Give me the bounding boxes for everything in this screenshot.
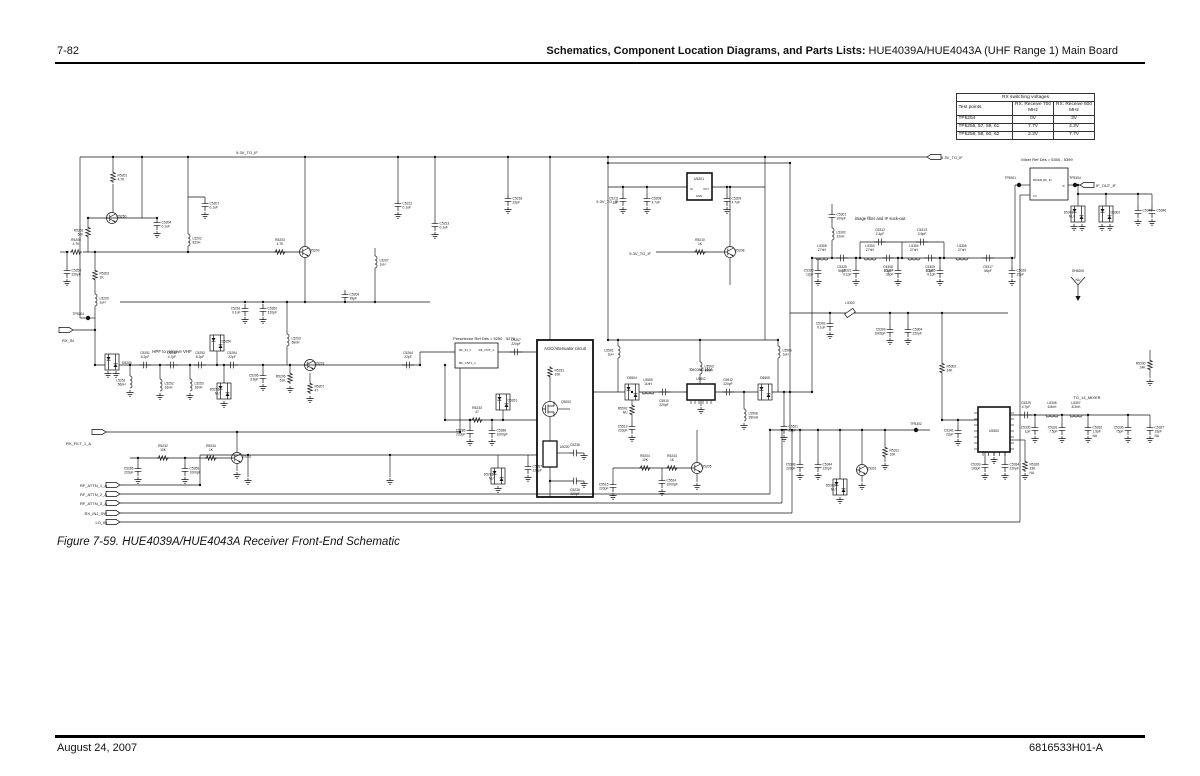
capacitor-symbol: [781, 422, 788, 434]
resistor-symbol: [883, 446, 888, 458]
ground-symbol: [1106, 224, 1113, 230]
manual-page: 7-82 Schematics, Component Location Diag…: [0, 0, 1200, 776]
component-label: 0.1uF: [210, 206, 218, 210]
component-label: 22pF: [404, 355, 412, 359]
ground-symbol: [156, 393, 163, 399]
component-label: NU: [1069, 215, 1074, 219]
voltage-table-header-800: RX: Receive 800 MHz: [1054, 101, 1095, 115]
voltage-table-header-testpoints: Test points: [957, 101, 1013, 115]
ground-symbol: [259, 317, 266, 323]
ground-symbol: [814, 279, 821, 285]
junction-dot: [129, 364, 131, 366]
junction-dot: [764, 156, 766, 158]
ground-symbol: [201, 212, 208, 218]
capacitor-symbol: [432, 219, 439, 231]
testpoint-dot: [1017, 183, 1021, 187]
component-label: 27nH: [958, 248, 967, 252]
junction-dot: [112, 156, 114, 158]
component-label: 4.7K: [118, 178, 126, 182]
resistor-symbol: [630, 404, 635, 416]
ground-symbol: [886, 338, 893, 344]
component-label: 220pF: [913, 332, 922, 336]
component-label: 0.1uF: [162, 225, 170, 229]
net-label: GND: [696, 194, 702, 198]
junction-dot: [901, 257, 903, 259]
component-label: 24K: [1140, 366, 1147, 370]
component-label: 1K: [209, 448, 214, 452]
component-label: 11nH: [644, 382, 652, 386]
table-row: TP5254 0V 3V: [957, 115, 1095, 123]
junction-dot: [831, 257, 833, 259]
junction-dot: [859, 257, 861, 259]
component-label: NU: [1093, 434, 1098, 438]
inductor-symbol: [287, 334, 289, 346]
net-label: IF_OUT_IF: [1096, 183, 1117, 188]
component-label: 0.1uF: [817, 326, 825, 330]
component-label: 220pF: [823, 467, 832, 471]
component-label: 4.7pF: [1022, 405, 1030, 409]
component-label: TP5301: [1004, 176, 1016, 180]
component-label: 390nH: [749, 416, 759, 420]
component-label: 100pF: [837, 217, 846, 221]
junction-dot: [344, 301, 346, 303]
junction-dot: [789, 391, 791, 393]
capacitor-symbol: [569, 450, 581, 457]
junction-dot: [897, 257, 899, 259]
capacitor-symbol: [135, 464, 142, 476]
junction-dot: [262, 364, 264, 366]
ground-symbol: [394, 212, 401, 218]
component-label: 8.2pF: [196, 355, 204, 359]
junction-dot: [789, 162, 791, 164]
net-label: 9.3V_TO_IF: [941, 155, 963, 160]
ground-symbol: [1124, 436, 1131, 442]
testpoint-dot: [86, 316, 90, 320]
ground-symbol: [1008, 279, 1015, 285]
junction-dot: [304, 301, 306, 303]
junction-dot: [247, 454, 249, 456]
ground-symbol: [697, 407, 704, 413]
ground-symbol: [796, 473, 803, 479]
ground-symbol: [836, 497, 843, 503]
ic-box: [543, 441, 557, 467]
testpoint-cell: TP5254: [957, 115, 1013, 123]
resistor-symbol: [205, 456, 217, 461]
capacitor-symbol: [955, 426, 962, 438]
component-label: 1000pF: [667, 483, 678, 487]
junction-dot: [184, 457, 186, 459]
junction-dot: [607, 339, 609, 341]
junction-dot: [855, 257, 857, 259]
figure-caption: Figure 7-59. HUE4039A/HUE4043A Receiver …: [57, 536, 400, 548]
junction-dot: [777, 339, 779, 341]
resistor-symbol: [308, 382, 313, 394]
inductor-symbol: [95, 294, 97, 306]
junction-dot: [374, 301, 376, 303]
capacitor-symbol: [620, 194, 627, 206]
capacitor-symbol: [887, 325, 894, 337]
net-label: Second LNA: [689, 367, 713, 372]
component-label: C5346: [1157, 209, 1167, 213]
component-label: 9.1pF: [927, 273, 935, 277]
junction-dot: [941, 312, 943, 314]
junction-dot: [811, 257, 813, 259]
footer-part-number: 6816533H01-A: [1029, 742, 1103, 754]
junction-dot: [199, 484, 201, 486]
net-label: OUT: [703, 187, 709, 191]
capacitor-symbol: [1009, 266, 1016, 278]
component-label: 220pF: [124, 471, 133, 475]
ground-symbol: [780, 435, 787, 441]
net-label: image filter and IF suck-out: [855, 216, 906, 221]
voltage-table-title: RX switching voltages: [957, 94, 1095, 102]
component-label: 75pF: [1116, 430, 1124, 434]
junction-dot: [617, 339, 619, 341]
junction-dot: [811, 391, 813, 393]
resistor-symbol: [940, 362, 945, 374]
component-label: 8.2pF: [141, 355, 149, 359]
component-label: 47: [475, 410, 479, 414]
component-label: 39pF: [350, 297, 358, 301]
component-label: 220pF: [1010, 467, 1019, 471]
voltage-table: RX switching voltages Test points RX: Re…: [956, 93, 1095, 140]
capacitor-symbol: [1085, 423, 1092, 435]
capacitor-symbol: [342, 290, 349, 302]
junction-dot: [389, 454, 391, 456]
junction-dot: [781, 429, 783, 431]
junction-dot: [236, 431, 238, 433]
ground-symbol: [881, 463, 888, 469]
component-label: 3.9pF: [918, 232, 926, 236]
connector-symbol: [59, 327, 73, 332]
junction-dot: [769, 429, 771, 431]
junction-dot: [141, 156, 143, 158]
ground-symbol: [244, 478, 251, 484]
capacitor-symbol: [644, 194, 651, 206]
component-label: D5505: [760, 376, 770, 380]
component-label: 10K: [642, 458, 649, 462]
component-label: 10K: [555, 373, 562, 377]
component-label: 0.1uF: [403, 206, 411, 210]
junction-dot: [549, 156, 551, 158]
ground-symbol: [580, 481, 587, 487]
inductor-symbol: [618, 346, 620, 358]
junction-dot: [66, 251, 68, 253]
junction-dot: [434, 156, 436, 158]
ground-symbol: [981, 473, 988, 479]
net-label: 9.3V_TO_IF: [236, 150, 258, 155]
connector-symbol: [1080, 182, 1094, 187]
ground-symbol: [134, 477, 141, 483]
junction-dot: [1077, 184, 1079, 186]
capacitor-symbol: [797, 460, 804, 472]
ground-symbol: [643, 207, 650, 213]
junction-dot: [646, 186, 648, 188]
component-label: 56pF: [984, 269, 992, 273]
component-label: 0.1uF: [440, 226, 448, 230]
capacitor-symbol: [202, 199, 209, 211]
net-label: NU: [1076, 278, 1081, 282]
ground-symbol: [936, 279, 943, 285]
component-label: 15pF: [1017, 273, 1025, 277]
junction-dot: [87, 217, 89, 219]
ground-symbol: [826, 332, 833, 338]
footer-date: August 24, 2007: [57, 742, 137, 754]
connector-symbol: [106, 510, 120, 515]
net-label: IF: [1063, 184, 1066, 188]
connector-symbol: [106, 491, 120, 496]
component-label: 68nH: [292, 341, 301, 345]
resistor-symbol: [1023, 460, 1028, 472]
ground-symbol: [1134, 219, 1141, 225]
junction-dot: [1077, 193, 1079, 195]
connector-symbol: [106, 519, 120, 524]
junction-dot: [943, 257, 945, 259]
net-label: IN: [690, 187, 693, 191]
component-label: Q5208: [735, 249, 745, 253]
capacitor-symbol: [815, 460, 822, 472]
connector-symbol: [92, 429, 106, 434]
component-label: 1K: [698, 242, 703, 246]
component-label: 1K: [100, 276, 105, 280]
voltage-cell: 2.3V: [1013, 131, 1054, 139]
component-label: NU: [489, 477, 494, 481]
table-row: TP5255, 57, 59, 61 7.7V 4.3V: [957, 123, 1095, 131]
component-label: Q5251: [242, 455, 252, 459]
component-label: 8.2nH: [1072, 405, 1081, 409]
ground-symbol: [494, 486, 501, 492]
junction-dot: [622, 186, 624, 188]
net-label: 9.3V_TO_IF: [629, 251, 651, 256]
net-label: HPF to remove VHF: [152, 349, 192, 354]
component-label: 27nH: [910, 248, 919, 252]
junction-dot: [444, 419, 446, 421]
junction-dot: [244, 301, 246, 303]
ground-symbol: [904, 338, 911, 344]
ic-box: [537, 340, 593, 497]
voltage-cell: 0V: [1013, 115, 1054, 123]
capacitor-symbol: [1135, 206, 1142, 218]
resistor-symbol: [93, 269, 98, 281]
junction-dot: [419, 364, 421, 366]
capacitor-symbol: [905, 325, 912, 337]
testpoint-cell: TP5255, 57, 59, 61: [957, 123, 1013, 131]
capacitor-symbol: [569, 478, 581, 485]
resistor-symbol: [548, 366, 553, 378]
junction-dot: [289, 364, 291, 366]
ground-symbol: [814, 473, 821, 479]
component-label: TP5204: [72, 312, 84, 316]
junction-dot: [726, 186, 728, 188]
ground-symbol: [740, 423, 747, 429]
component-label: 4.7uF: [732, 201, 740, 205]
net-label: 9.3V_TO_IF: [596, 199, 618, 204]
diode-pack-symbol: [105, 354, 119, 370]
component-label: NU: [215, 392, 220, 396]
net-label: Preselector Ref Des = 5250 - 5279: [453, 336, 515, 341]
voltage-table-header-700: RX: Receive 700 MHz: [1013, 101, 1054, 115]
component-label: 47: [315, 389, 319, 393]
connector-symbol: [106, 482, 120, 487]
junction-dot: [941, 419, 943, 421]
resistor-symbol: [471, 418, 483, 423]
inductor-symbol: [744, 409, 746, 421]
junction-dot: [607, 156, 609, 158]
fet-symbol: [543, 402, 558, 417]
junction-dot: [549, 480, 551, 482]
net-label: RX_INJ_SW: [85, 511, 108, 516]
capacitor-symbol: [260, 371, 267, 383]
junction-dot: [939, 257, 941, 259]
capacitor-symbol: [815, 266, 822, 278]
ground-symbol: [386, 478, 393, 484]
ground-symbol: [858, 483, 865, 489]
ground-symbol: [1098, 224, 1105, 230]
ground-symbol: [894, 279, 901, 285]
ground-symbol: [241, 317, 248, 323]
junction-dot: [502, 419, 504, 421]
ground-symbol: [1078, 224, 1085, 230]
component-label: 56nH: [118, 383, 127, 387]
component-label: 82nH: [193, 241, 202, 245]
junction-dot: [783, 391, 785, 393]
component-label: 4.7pF: [168, 355, 176, 359]
junction-dot: [861, 429, 863, 431]
capacitor-symbol: [64, 266, 71, 278]
junction-dot: [1061, 414, 1063, 416]
component-label: D5504: [627, 376, 637, 380]
net-label: U5200: [560, 445, 570, 449]
table-row: TP5256, 58, 60, 62 2.3V 7.7V: [957, 131, 1095, 139]
component-label: 1uH: [100, 301, 107, 305]
junction-dot: [829, 312, 831, 314]
ground-symbol: [852, 279, 859, 285]
junction-dot: [631, 391, 633, 393]
capacitor-symbol: [467, 426, 474, 438]
component-label: 16nH: [165, 386, 174, 390]
junction-dot: [137, 457, 139, 459]
component-label: D5261: [508, 399, 518, 403]
component-label: 220pF: [786, 467, 795, 471]
voltage-cell: 4.3V: [1054, 123, 1095, 131]
component-label: 1uH: [607, 353, 614, 357]
ic-box: [687, 384, 715, 400]
junction-dot: [1127, 414, 1129, 416]
component-label: 100pF: [971, 467, 980, 471]
capacitor-symbol: [853, 266, 860, 278]
junction-dot: [889, 312, 891, 314]
net-label: RF_ATTN_1_A: [80, 483, 107, 488]
component-label: 220pF: [456, 433, 465, 437]
net-label: RF_ATTN_2_A: [80, 492, 107, 497]
junction-dot: [839, 429, 841, 431]
component-label: L5300: [845, 301, 854, 305]
junction-dot: [1011, 257, 1013, 259]
resistor-symbol: [157, 456, 169, 461]
component-label: 220pF: [533, 469, 542, 473]
capacitor-symbol: [937, 266, 944, 278]
resistor-symbol: [639, 466, 651, 471]
ground-symbol: [233, 472, 240, 478]
net-label: U5300: [989, 429, 999, 433]
junction-dot: [156, 217, 158, 219]
component-label: 0.1uF: [232, 311, 240, 315]
ground-symbol: [1021, 473, 1028, 479]
net-label: MIXER_RF_IN: [1033, 178, 1052, 182]
component-label: 27nH: [866, 248, 875, 252]
box-layer: [455, 168, 1068, 497]
capacitor-symbol: [182, 464, 189, 476]
component-label: 220pF: [570, 492, 579, 496]
net-label: LO_IN: [95, 520, 107, 525]
component-label: 16nH: [195, 386, 204, 390]
component-label: 27nH: [818, 248, 827, 252]
capacitor-symbol: [489, 426, 496, 438]
ground-symbol: [1058, 436, 1065, 442]
component-label: 220pF: [618, 429, 627, 433]
capacitor-symbol: [629, 422, 636, 434]
net-label: RX_FILT_1_A: [66, 441, 91, 446]
junction-dot: [915, 429, 917, 431]
junction-dot: [743, 391, 745, 393]
ground-symbol: [306, 396, 313, 402]
ground-symbol: [431, 232, 438, 238]
component-label: 3.9pF: [250, 378, 258, 382]
component-label: 10K: [160, 448, 167, 452]
component-label: NU: [1030, 471, 1035, 475]
ground-symbol: [693, 483, 700, 489]
capacitor-symbol: [659, 476, 666, 488]
junction-dot: [94, 364, 96, 366]
net-label: SH5200: [1072, 269, 1084, 273]
junction-dot: [507, 156, 509, 158]
resistor-symbol: [694, 250, 706, 255]
capacitor-symbol: [1147, 423, 1154, 435]
junction-dot: [94, 329, 96, 331]
component-label: C5345: [1143, 209, 1153, 213]
net-label: RF_OUT_1: [479, 348, 495, 352]
net-label: AGC/Attenuator circuit: [544, 346, 586, 351]
ground-symbol: [104, 371, 111, 377]
resistor-symbol: [86, 226, 91, 238]
net-label: RX_IN: [62, 338, 74, 343]
ground-symbol: [259, 384, 266, 390]
capacitor-symbol: [829, 210, 836, 222]
voltage-cell: 7.7V: [1054, 131, 1095, 139]
component-label: 220pF: [72, 273, 81, 277]
connector-symbol: [927, 154, 941, 159]
capacitor-symbol: [1032, 423, 1039, 435]
junction-dot: [397, 156, 399, 158]
ground-symbol: [153, 231, 160, 237]
junction-dot: [607, 162, 609, 164]
junction-dot: [957, 419, 959, 421]
capacitor-symbol: [154, 218, 161, 230]
component-label: 1pF: [1025, 430, 1031, 434]
junction-dot: [817, 429, 819, 431]
ground-symbol: [126, 390, 133, 396]
component-label: 22nH: [837, 235, 846, 239]
junction-dot: [1105, 193, 1107, 195]
junction-dot: [729, 186, 731, 188]
ground-symbol: [186, 393, 193, 399]
inductor-symbol: [375, 256, 377, 268]
ferrite-bead-symbol: [845, 308, 856, 317]
junction-dot: [304, 156, 306, 158]
ground-symbol: [1070, 224, 1077, 230]
ground-symbol: [286, 386, 293, 392]
component-label: 4.7K: [277, 242, 285, 246]
